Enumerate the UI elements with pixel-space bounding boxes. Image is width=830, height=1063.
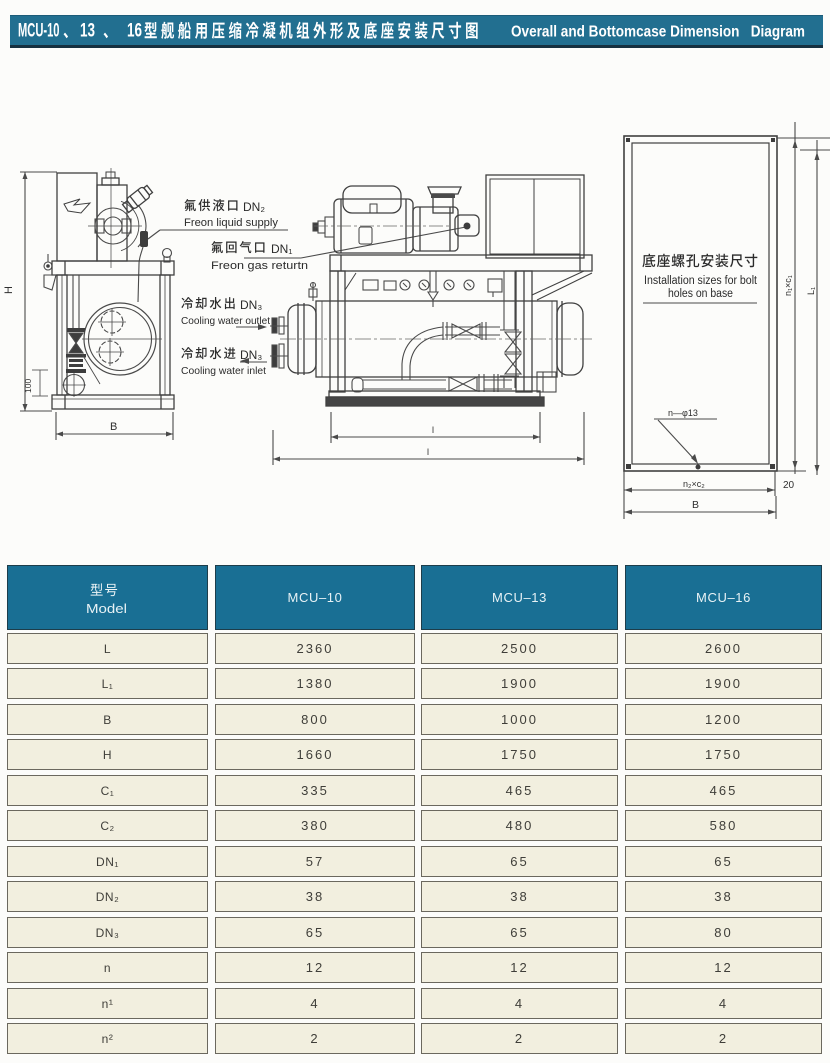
svg-text:Model: Model (86, 602, 127, 616)
